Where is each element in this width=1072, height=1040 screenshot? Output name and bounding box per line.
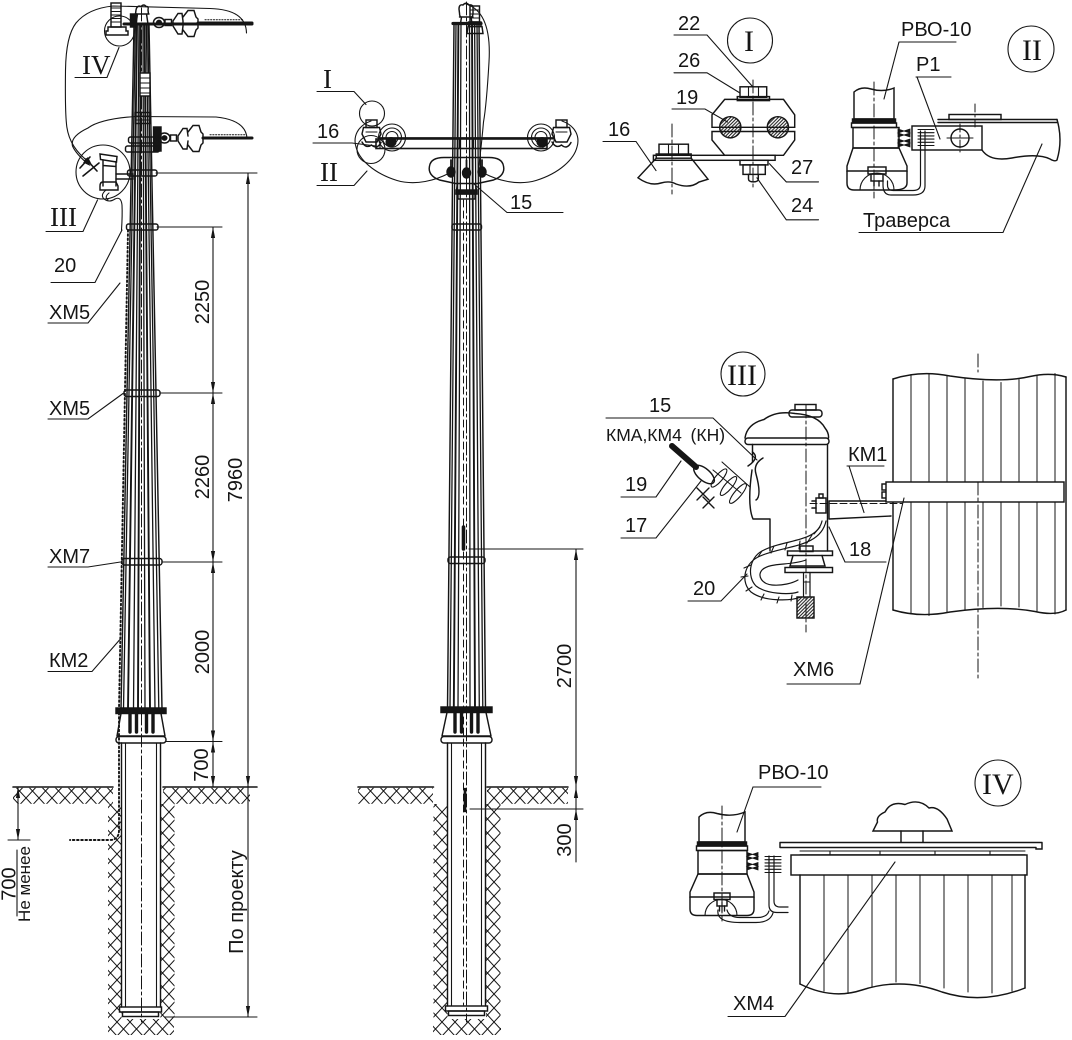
svg-text:2250: 2250 xyxy=(192,280,214,325)
svg-text:2260: 2260 xyxy=(192,455,214,500)
svg-text:По проекту: По проекту xyxy=(226,850,248,954)
svg-text:15: 15 xyxy=(510,192,532,214)
svg-text:ХМ5: ХМ5 xyxy=(49,302,90,324)
svg-text:19: 19 xyxy=(625,474,647,496)
svg-text:27: 27 xyxy=(791,157,813,179)
svg-text:Р1: Р1 xyxy=(916,54,940,76)
svg-text:РВО-10: РВО-10 xyxy=(901,19,971,41)
svg-text:II: II xyxy=(1022,34,1042,67)
svg-text:18: 18 xyxy=(849,539,871,561)
svg-text:19: 19 xyxy=(676,87,698,109)
svg-text:ХМ7: ХМ7 xyxy=(49,546,90,568)
svg-text:IV: IV xyxy=(82,50,111,80)
svg-text:КМ1: КМ1 xyxy=(848,444,887,466)
svg-text:ХМ5: ХМ5 xyxy=(49,398,90,420)
svg-text:I: I xyxy=(744,25,754,58)
svg-text:16: 16 xyxy=(317,121,339,143)
svg-text:II: II xyxy=(320,157,338,187)
svg-text:РВО-10: РВО-10 xyxy=(758,762,828,784)
svg-text:КМА,КМ4 (КН): КМА,КМ4 (КН) xyxy=(606,425,725,445)
svg-text:III: III xyxy=(727,359,757,392)
svg-text:IV: IV xyxy=(982,768,1014,801)
svg-text:26: 26 xyxy=(678,50,700,72)
svg-text:20: 20 xyxy=(693,578,715,600)
svg-text:2000: 2000 xyxy=(192,630,214,675)
svg-text:20: 20 xyxy=(54,255,76,277)
svg-text:2700: 2700 xyxy=(554,644,576,689)
svg-text:ХМ4: ХМ4 xyxy=(733,993,774,1015)
svg-text:24: 24 xyxy=(791,195,813,217)
svg-text:700: 700 xyxy=(191,748,213,781)
svg-text:Не менее: Не менее xyxy=(15,846,34,922)
svg-text:7960: 7960 xyxy=(225,458,247,503)
svg-text:17: 17 xyxy=(625,515,647,537)
svg-text:22: 22 xyxy=(678,13,700,35)
svg-text:I: I xyxy=(323,64,332,94)
svg-text:300: 300 xyxy=(554,823,576,856)
svg-text:16: 16 xyxy=(608,119,630,141)
svg-text:ХМ6: ХМ6 xyxy=(793,659,834,681)
svg-text:КМ2: КМ2 xyxy=(49,650,88,672)
svg-text:15: 15 xyxy=(649,395,671,417)
svg-text:III: III xyxy=(50,202,77,232)
svg-text:Траверса: Траверса xyxy=(863,210,951,232)
